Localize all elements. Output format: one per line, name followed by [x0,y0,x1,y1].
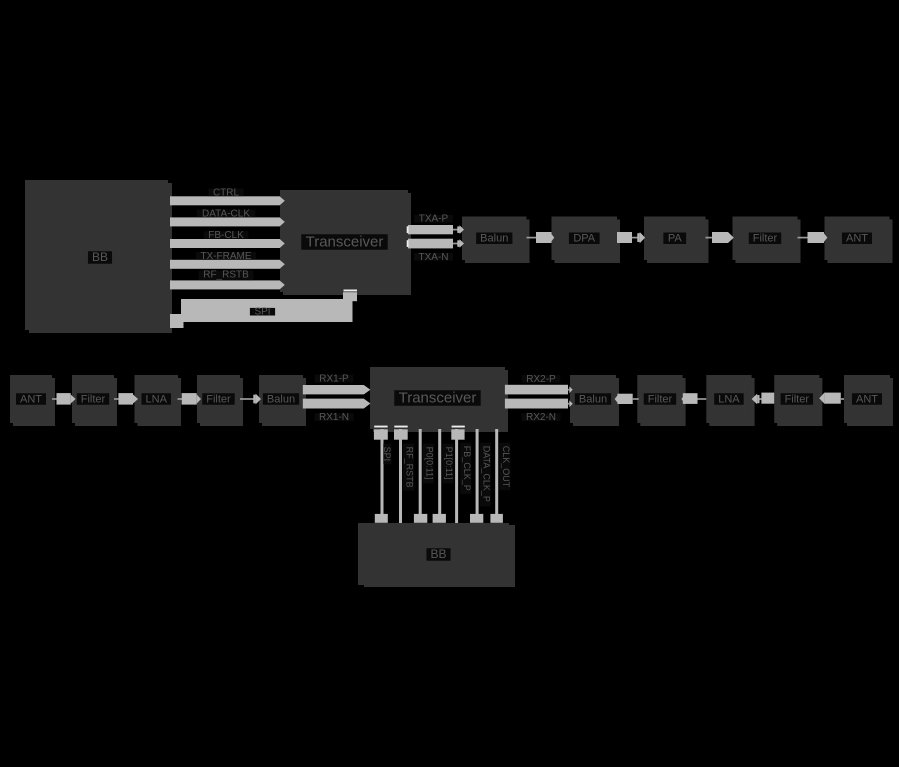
svg-text:FB_CLK_P: FB_CLK_P [462,446,472,491]
svg-text:Filter: Filter [753,233,778,245]
svg-text:DPA: DPA [573,233,595,245]
svg-text:SPI: SPI [382,447,392,462]
svg-text:RX2-P: RX2-P [526,374,556,385]
svg-text:DATA_CLK_P: DATA_CLK_P [482,446,492,502]
svg-text:Filter: Filter [785,393,810,405]
svg-text:P1[0:11]: P1[0:11] [444,447,454,480]
svg-text:RF_RSTB: RF_RSTB [203,269,249,280]
svg-text:FB-CLK: FB-CLK [208,230,244,241]
svg-text:Transceiver: Transceiver [306,233,384,250]
svg-text:TXA-P: TXA-P [419,214,449,225]
svg-text:ANT: ANT [856,393,878,405]
svg-text:SPI: SPI [254,307,270,318]
svg-text:DATA-CLK: DATA-CLK [202,208,250,219]
svg-text:LNA: LNA [718,393,740,405]
svg-text:PA: PA [668,233,683,245]
svg-text:BB: BB [92,250,108,264]
svg-text:RX2-N: RX2-N [526,412,556,423]
svg-text:RF_RSTB: RF_RSTB [405,447,415,488]
svg-text:Filter: Filter [81,393,106,405]
svg-text:RX1-P: RX1-P [319,374,349,385]
svg-text:RX1-N: RX1-N [319,412,349,423]
svg-text:BB: BB [430,547,446,561]
svg-text:P0[0:11]: P0[0:11] [425,447,435,480]
svg-text:Filter: Filter [648,393,673,405]
svg-text:TXA-N: TXA-N [419,252,449,263]
svg-text:ANT: ANT [846,233,868,245]
svg-text:Balun: Balun [480,233,508,245]
svg-text:Filter: Filter [206,393,231,405]
svg-text:Transceiver: Transceiver [399,389,477,406]
svg-text:Balun: Balun [267,393,295,405]
svg-text:CTRL: CTRL [213,187,240,198]
svg-text:TX-FRAME: TX-FRAME [200,251,251,262]
svg-text:CLK_OUT: CLK_OUT [501,446,511,488]
svg-text:LNA: LNA [146,393,168,405]
svg-text:ANT: ANT [20,393,42,405]
svg-text:Balun: Balun [579,393,607,405]
